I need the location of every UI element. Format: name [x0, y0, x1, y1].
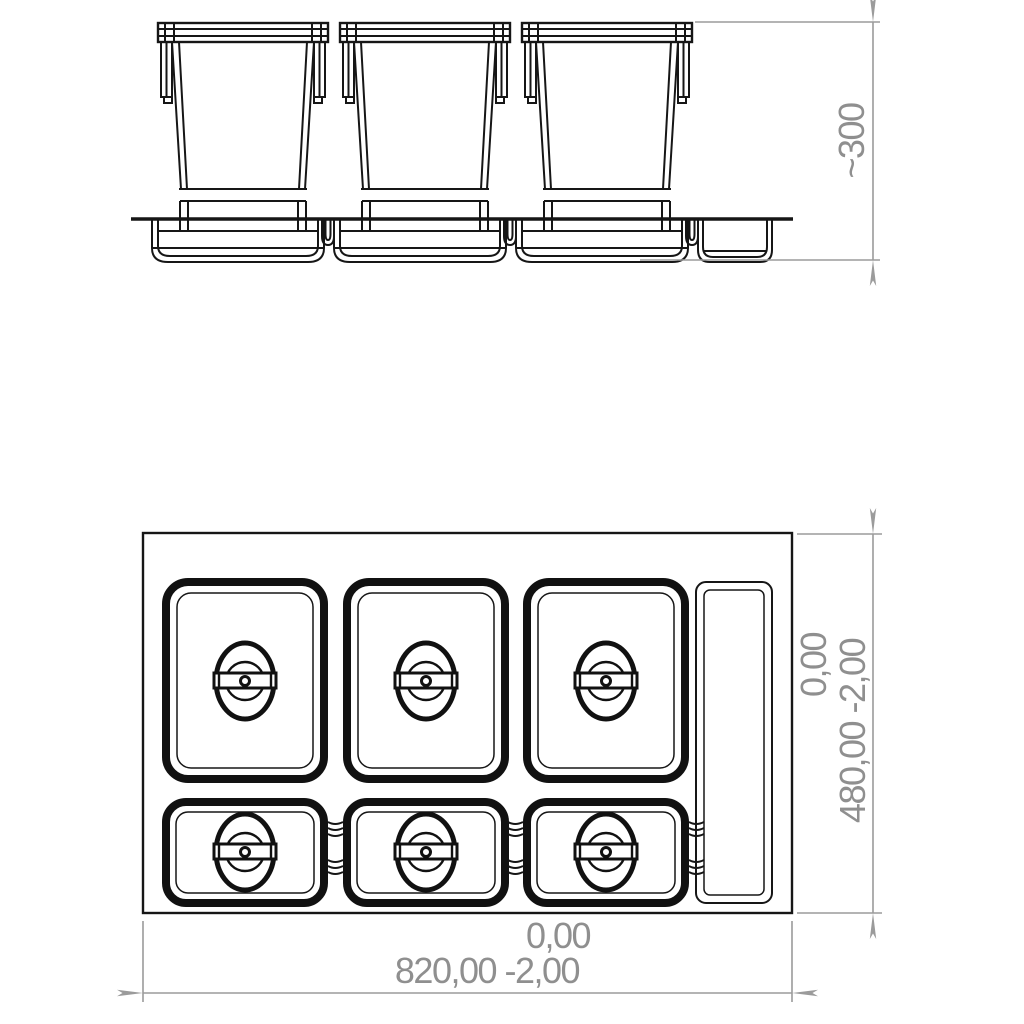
lid-knob-6 [575, 814, 637, 890]
bin-3-side [522, 23, 692, 231]
side-elevation-view: ~300 [131, 0, 880, 286]
dimension-height-label: ~300 [831, 103, 872, 179]
bin-2-side [340, 23, 510, 231]
lid-knob-1 [214, 643, 276, 719]
side-tray-side-view [698, 219, 772, 262]
lid-knob-2 [395, 643, 457, 719]
plan-view: 0,00 480,00 -2,00 0,00 820,00 -2,00 [117, 508, 882, 1002]
dimension-width-label: 820,00 -2,00 [395, 950, 580, 991]
clip-1a [328, 822, 343, 836]
dimension-width: 0,00 820,00 -2,00 [117, 915, 818, 1002]
side-tray-plan-view [696, 582, 772, 903]
clip-2a [508, 822, 523, 836]
dimension-depth-tolerance-label: 0,00 [793, 632, 834, 697]
dimension-depth-label: 480,00 -2,00 [832, 638, 873, 823]
lid-knob-4 [214, 814, 276, 890]
bin-1-side [158, 23, 328, 231]
technical-drawing-canvas: ~300 [0, 0, 1024, 1024]
clip-1b [328, 860, 343, 874]
dimension-depth: 0,00 480,00 -2,00 [793, 508, 882, 939]
lid-knob-3 [575, 643, 637, 719]
lid-knob-5 [395, 814, 457, 890]
clip-2b [508, 860, 523, 874]
